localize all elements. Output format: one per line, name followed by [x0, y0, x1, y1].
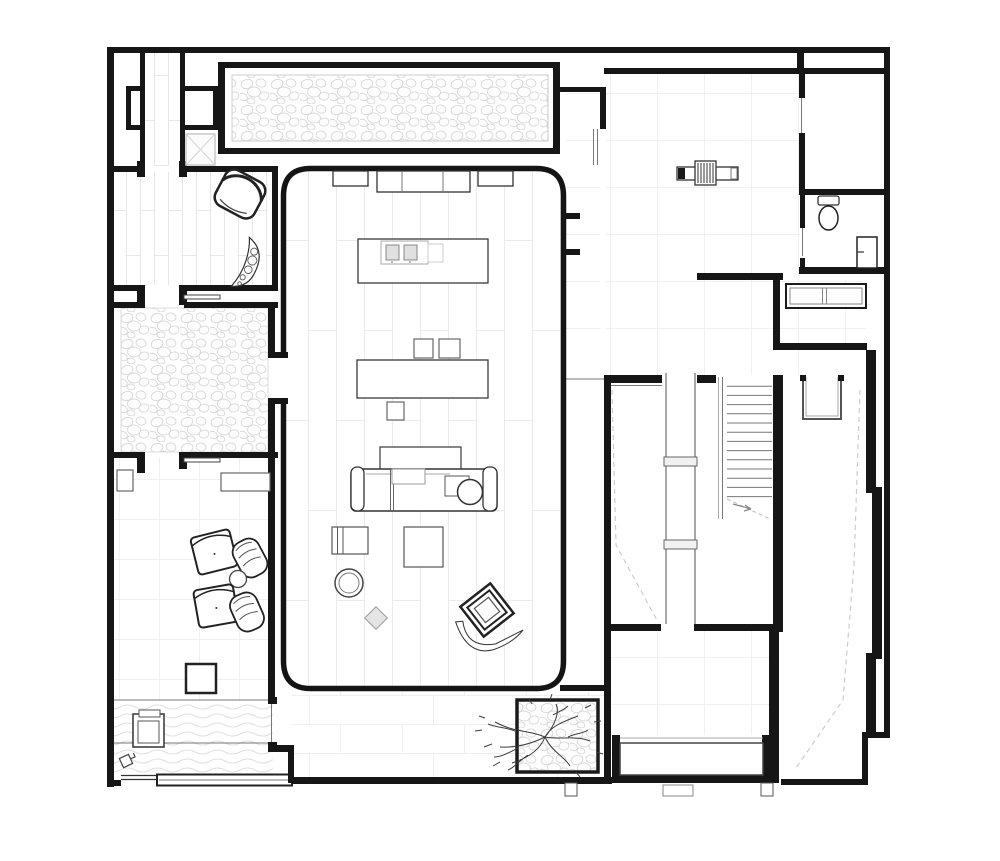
- stair-treads: [727, 386, 772, 496]
- entry-step: [663, 785, 693, 796]
- wall-niche: [478, 171, 513, 186]
- wall-segment: [780, 343, 867, 350]
- wall-segment: [107, 47, 890, 53]
- wall-segment: [288, 745, 294, 783]
- cooktop-knob: [391, 261, 393, 263]
- cooktop-knob: [409, 261, 411, 263]
- lightwell-notch: [803, 377, 841, 419]
- wall-segment: [600, 87, 606, 129]
- void-bridge: [664, 540, 697, 549]
- wall-segment: [773, 276, 780, 350]
- void-bay: [612, 373, 697, 624]
- wall-segment: [114, 452, 139, 458]
- wall-segment: [213, 86, 218, 130]
- wall-segment: [272, 166, 278, 291]
- dining-chair: [439, 339, 460, 358]
- stairs: [719, 377, 773, 519]
- dining-chair: [387, 402, 404, 420]
- open-door-leaf: [184, 295, 220, 299]
- gravel-strip-fill: [232, 75, 548, 141]
- ramp-corridor: [796, 375, 860, 768]
- wall-cabinet: [117, 470, 133, 491]
- column-footing: [761, 783, 773, 796]
- ramp-dashed-path: [796, 390, 860, 768]
- wall-segment: [268, 398, 275, 453]
- wall-segment: [799, 133, 805, 195]
- outdoor-chair-back: [139, 710, 160, 717]
- wall-segment: [694, 624, 773, 631]
- wall-segment: [218, 62, 225, 154]
- wall-segment: [126, 86, 131, 130]
- wall-segment: [553, 62, 560, 154]
- wall-segment: [268, 308, 275, 358]
- door-jamb: [137, 452, 145, 473]
- wall-segment: [563, 213, 580, 219]
- wall-segment: [180, 50, 185, 168]
- sofa-tray: [392, 469, 425, 484]
- toilet-tank: [818, 196, 839, 205]
- wall-segment: [558, 87, 606, 92]
- wall-segment: [121, 776, 157, 780]
- floor-plan-canvas: [0, 0, 1000, 861]
- wall-niche: [333, 171, 368, 186]
- void-bridge: [664, 457, 697, 466]
- wall-segment: [797, 47, 804, 70]
- alcove-cabinet: [786, 284, 866, 308]
- wall-segment: [799, 189, 884, 195]
- wall-cabinet: [221, 473, 270, 491]
- wall-segment: [604, 68, 800, 74]
- stair-break-line: [727, 499, 770, 519]
- sofa-arm: [483, 467, 497, 511]
- wall-segment: [604, 624, 661, 631]
- skylight: [186, 134, 215, 165]
- wall-segment: [114, 285, 139, 291]
- wall-segment: [872, 487, 882, 659]
- wall-segment: [107, 47, 114, 787]
- burner: [404, 245, 417, 260]
- wall-segment: [800, 375, 806, 381]
- wall-segment: [560, 685, 611, 691]
- wall-segment: [114, 302, 139, 308]
- south-corridor-floor: [611, 631, 769, 735]
- coffee-table: [404, 527, 443, 567]
- wall-segment: [838, 375, 844, 381]
- kitchen-island: [358, 239, 488, 283]
- column-footing: [565, 783, 577, 796]
- courtyard-gravel-fill: [121, 308, 268, 452]
- wall-segment: [114, 166, 140, 172]
- wall-segment: [563, 249, 580, 255]
- console: [380, 447, 461, 470]
- open-door-leaf: [184, 458, 220, 462]
- floor-finishes: [114, 52, 866, 777]
- door-jamb: [268, 697, 277, 704]
- wall-segment: [604, 375, 662, 383]
- wall-segment: [769, 631, 779, 783]
- wall-segment: [604, 383, 611, 783]
- wall-segment: [799, 68, 884, 74]
- wall-segment: [107, 780, 121, 786]
- wall-segment: [866, 653, 876, 738]
- sofa-arm: [351, 467, 364, 511]
- ramp-dashed-path: [612, 390, 658, 622]
- wc-fixtures: [818, 196, 877, 268]
- wall-segment: [884, 47, 890, 738]
- gallery-floor: [566, 92, 600, 375]
- door-jamb: [137, 161, 145, 177]
- wall-segment: [800, 258, 805, 273]
- round-cushion: [458, 480, 483, 505]
- wall-segment: [184, 452, 278, 458]
- burner: [386, 245, 399, 260]
- entry-cross-passage-floor: [145, 52, 180, 166]
- dining-table: [357, 360, 488, 398]
- toilet-bowl: [819, 206, 838, 230]
- porch-landing: [620, 743, 763, 775]
- island-sink: [428, 244, 443, 262]
- wall-segment: [773, 375, 783, 632]
- entry-hall-floor: [606, 74, 800, 375]
- wall-segment: [184, 302, 278, 308]
- wall-segment: [697, 273, 783, 280]
- wall-segment: [866, 350, 876, 493]
- wall-segment: [292, 777, 612, 784]
- square-table: [186, 664, 216, 693]
- wall-segment: [140, 50, 145, 168]
- wardrobe-niche: [377, 171, 470, 192]
- wall-segment: [862, 732, 868, 785]
- door-jamb: [137, 285, 145, 308]
- wall-segment: [781, 779, 868, 785]
- wall-segment: [218, 62, 560, 68]
- floor-plan-page: [0, 0, 1000, 861]
- bench-end: [678, 168, 685, 179]
- wall-segment: [184, 86, 218, 91]
- dining-chair: [414, 339, 433, 358]
- wall-segment: [612, 775, 770, 783]
- wall-segment: [218, 148, 560, 154]
- wall-segment: [800, 195, 805, 228]
- armchair: [190, 529, 238, 576]
- stair-direction-arrow-icon: [733, 504, 751, 511]
- wall-segment: [697, 375, 716, 383]
- wall-segment: [184, 125, 218, 130]
